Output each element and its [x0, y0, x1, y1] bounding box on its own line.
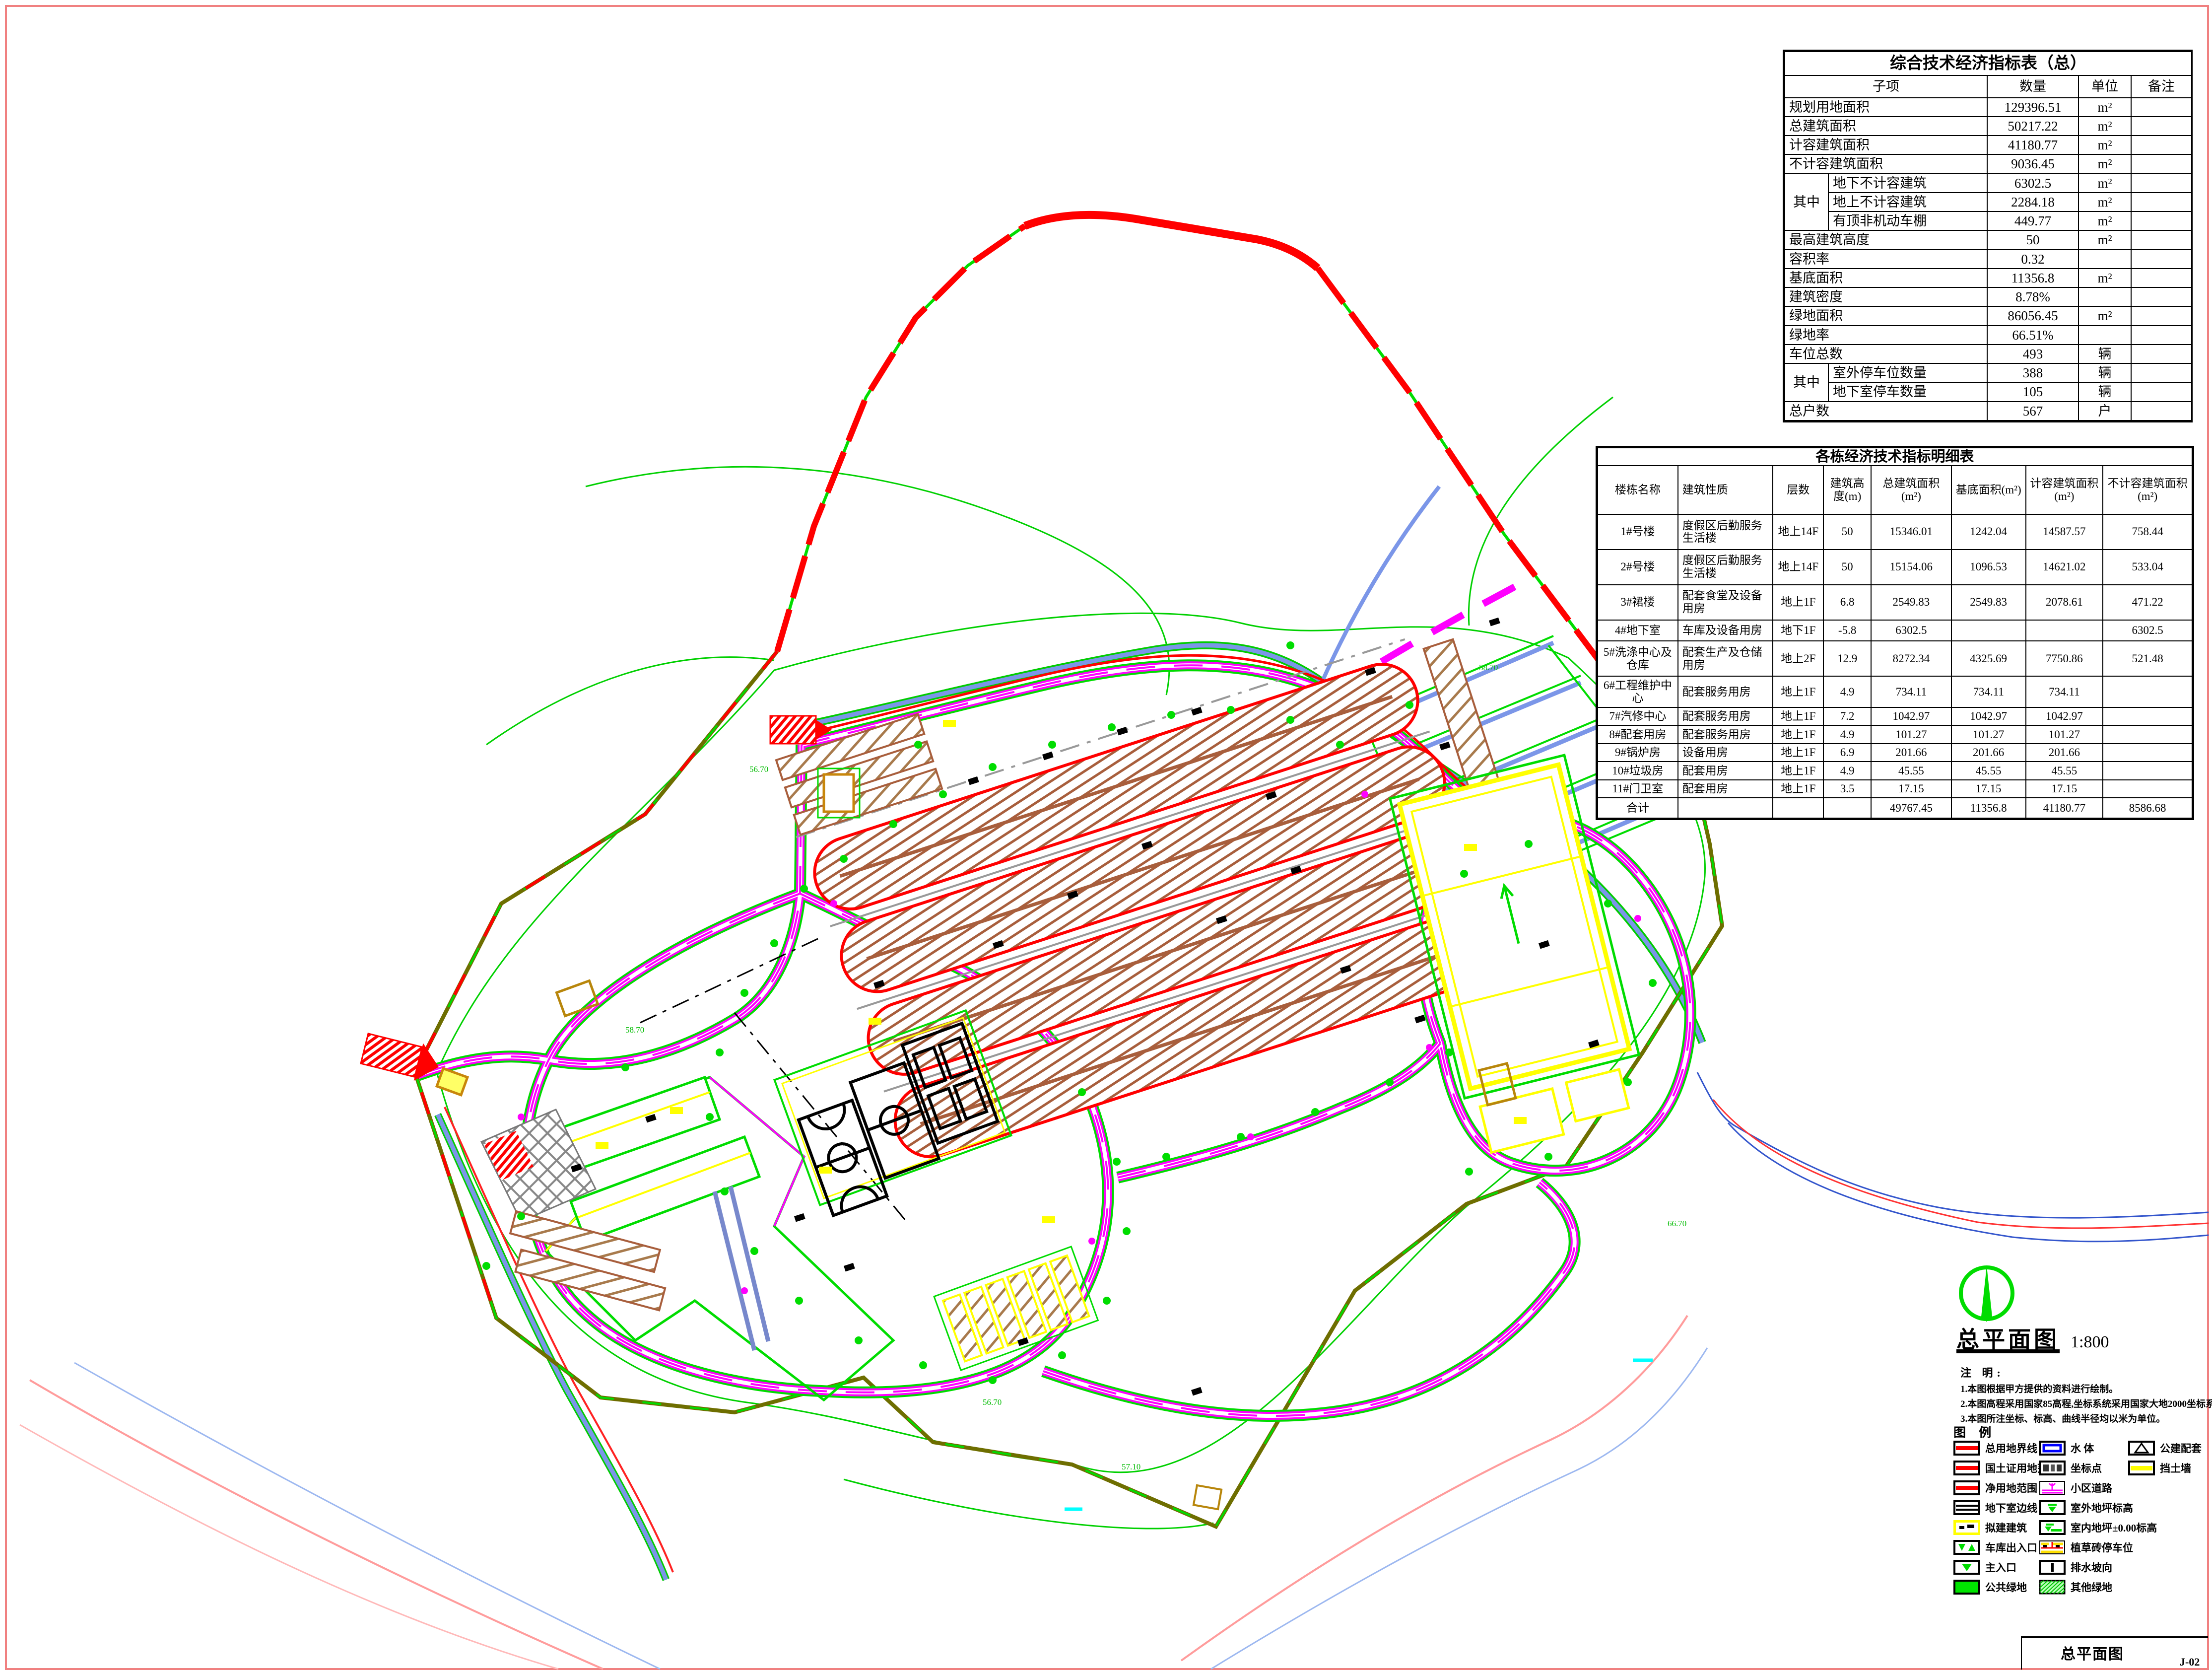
table-cell: 地上14F [1773, 550, 1823, 585]
table-cell: m² [2078, 174, 2131, 193]
legend-item: 水 体 [2039, 1440, 2094, 1457]
elevation-label: 56.70 [983, 1397, 1002, 1407]
table-cell: m² [2078, 306, 2131, 325]
legend-label: 总用地界线 [1985, 1441, 2037, 1456]
table-cell: 7.2 [1823, 707, 1871, 725]
table-cell: 建筑密度 [1785, 287, 1987, 306]
table-cell [2131, 382, 2192, 401]
note-line: 2.本图高程采用国家85高程,坐标系统采用国家大地2000坐标系统。 [1960, 1396, 2199, 1410]
coord-point-icon [2039, 1461, 2066, 1475]
table-cell [2131, 326, 2192, 345]
table-cell: m² [2078, 230, 2131, 249]
table-cell: 2549.83 [1951, 585, 2026, 620]
notes-lines: 1.本图根据甲方提供的资料进行绘制。2.本图高程采用国家85高程,坐标系统采用国… [1960, 1382, 2199, 1425]
table-cell: 50217.22 [1987, 117, 2078, 136]
green-solid-icon [1953, 1580, 1980, 1595]
table-cell: 合计 [1598, 798, 1678, 818]
table-cell: 辆 [2078, 363, 2131, 382]
legend-item: 小区道路 [2039, 1479, 2112, 1496]
table-cell [2103, 707, 2192, 725]
table-cell [2078, 287, 2131, 306]
table-cell: 地上2F [1773, 641, 1823, 676]
table-cell: 地上1F [1773, 585, 1823, 620]
table-cell: 734.11 [1871, 676, 1951, 707]
table-cell: 辆 [2078, 382, 2131, 401]
table-cell: 地上14F [1773, 514, 1823, 550]
table-cell: 配套用房 [1678, 780, 1773, 798]
table-cell: 10#垃圾房 [1598, 762, 1678, 779]
table-cell: 配套服务用房 [1678, 707, 1773, 725]
table-cell: 1242.04 [1951, 514, 2026, 550]
main-entrance-icon [1953, 1560, 1980, 1575]
table-cell: 度假区后勤服务生活楼 [1678, 514, 1773, 550]
red-line-icon [1953, 1441, 1980, 1456]
legend-label: 其他绿地 [2071, 1580, 2112, 1595]
table-cell: 楼栋名称 [1598, 466, 1678, 514]
table-cell: 绿地率 [1785, 326, 1987, 345]
table-cell: 201.66 [2026, 744, 2103, 762]
table-cell: 4#地下室 [1598, 620, 1678, 641]
table-cell: m² [2078, 136, 2131, 154]
table-cell: 9036.45 [1987, 154, 2078, 173]
table-cell: 配套服务用房 [1678, 676, 1773, 707]
table-cell: 单位 [2078, 75, 2131, 97]
table-cell: 50 [1823, 514, 1871, 550]
legend-label: 主入口 [1985, 1560, 2016, 1575]
map-title-underline [1956, 1349, 2060, 1353]
table-cell: 2#号楼 [1598, 550, 1678, 585]
table-cell: 地上1F [1773, 744, 1823, 762]
garage-entrance-icon [1953, 1540, 1980, 1555]
table-cell: 7750.86 [2026, 641, 2103, 676]
table-cell [1823, 798, 1871, 818]
legend-label: 地下室边线 [1985, 1500, 2037, 1515]
table-cell: 计容建筑面积 [1785, 136, 1987, 154]
table-cell: 地上1F [1773, 762, 1823, 779]
table-cell: 17.15 [2026, 780, 2103, 798]
table-cell [2103, 676, 2192, 707]
table-cell: 地上1F [1773, 676, 1823, 707]
drain-icon [2039, 1560, 2066, 1575]
table-cell: 14587.57 [2026, 514, 2103, 550]
table-cell: 45.55 [1871, 762, 1951, 779]
table-cell: 449.77 [1987, 211, 2078, 230]
table-cell [2026, 620, 2103, 641]
table-cell: 129396.51 [1987, 98, 2078, 117]
table-cell [2131, 230, 2192, 249]
red-line-icon [1953, 1480, 1980, 1495]
legend-label: 小区道路 [2071, 1480, 2112, 1495]
table-cell: 8.78% [1987, 287, 2078, 306]
legend-item: 植草砖停车位 [2039, 1539, 2133, 1556]
legend-label: 植草砖停车位 [2071, 1540, 2133, 1555]
table-cell: 建筑高度(m) [1823, 466, 1871, 514]
table-cell: 子项 [1785, 75, 1987, 97]
grass-parking-icon [2039, 1540, 2066, 1555]
table-cell: 8272.34 [1871, 641, 1951, 676]
table-title: 综合技术经济指标表（总） [1785, 52, 2192, 75]
table-cell: 471.22 [2103, 585, 2192, 620]
table-cell: 配套生产及仓储用房 [1678, 641, 1773, 676]
table-cell: 41180.77 [1987, 136, 2078, 154]
yellow-building-icon [1953, 1520, 1980, 1535]
table-cell [2103, 744, 2192, 762]
table-cell [1951, 620, 2026, 641]
table-cell: 66.51% [1987, 326, 2078, 345]
table-cell: 5#洗涤中心及仓库 [1598, 641, 1678, 676]
table-cell: m² [2078, 98, 2131, 117]
legend-item: 公建配套 [2128, 1440, 2202, 1457]
table-cell [2131, 117, 2192, 136]
notes-block: 注 明: 1.本图根据甲方提供的资料进行绘制。2.本图高程采用国家85高程,坐标… [1960, 1364, 2199, 1425]
legend-item: 公共绿地 [1953, 1579, 2027, 1596]
other-green-icon [2039, 1580, 2066, 1595]
table-cell: 辆 [2078, 345, 2131, 363]
table-cell: 最高建筑高度 [1785, 230, 1987, 249]
table-cell: 86056.45 [1987, 306, 2078, 325]
table-cell: 地上1F [1773, 707, 1823, 725]
table-cell: 6302.5 [1987, 174, 2078, 193]
table-cell: 6302.5 [2103, 620, 2192, 641]
table-cell: 105 [1987, 382, 2078, 401]
table-cell: 14621.02 [2026, 550, 2103, 585]
map-title-block: 总平面图 1:800 [1956, 1322, 2165, 1356]
drawing-sheet: 56.7058.7057.1066.7056.7058.70 综合技术经济指标表… [0, 0, 2212, 1673]
table-cell [2131, 154, 2192, 173]
black-line-icon [1953, 1500, 1980, 1515]
table-cell: 车位总数 [1785, 345, 1987, 363]
legend-item: 室外地坪标高 [2039, 1499, 2133, 1516]
red-line-icon [1953, 1461, 1980, 1475]
table-cell: m² [2078, 193, 2131, 211]
table-cell: 层数 [1773, 466, 1823, 514]
titleblock-drawing-number: J-02 [2180, 1656, 2200, 1669]
table-cell: 3#裙楼 [1598, 585, 1678, 620]
table-cell: 101.27 [1871, 725, 1951, 743]
table-cell: 521.48 [2103, 641, 2192, 676]
table-cell: 45.55 [1951, 762, 2026, 779]
table-cell: 45.55 [2026, 762, 2103, 779]
table-cell [2078, 326, 2131, 345]
table-cell [1773, 798, 1823, 818]
table-cell [2131, 269, 2192, 287]
table-cell: 其中 [1785, 174, 1828, 231]
table-cell: 基底面积(m²) [1951, 466, 2026, 514]
table-cell: 6.9 [1823, 744, 1871, 762]
table-cell: 758.44 [2103, 514, 2192, 550]
legend-label: 坐标点 [2071, 1461, 2102, 1475]
table-cell: 101.27 [2026, 725, 2103, 743]
table-cell [2131, 306, 2192, 325]
table-cell: 12.9 [1823, 641, 1871, 676]
legend-item: 室内地坪±0.00标高 [2039, 1519, 2157, 1536]
legend-item: 车库出入口 [1953, 1539, 2037, 1556]
legend-label: 挡土墙 [2160, 1461, 2191, 1475]
table-cell [2131, 136, 2192, 154]
table-cell: 2549.83 [1871, 585, 1951, 620]
table-cell: 15154.06 [1871, 550, 1951, 585]
table-cell: 有顶非机动车棚 [1828, 211, 1987, 230]
table-cell: 0.32 [1987, 250, 2078, 269]
elev-indoor-icon [2039, 1520, 2066, 1535]
table-cell [2131, 402, 2192, 420]
legend-label: 排水坡向 [2071, 1560, 2112, 1575]
table-cell [2131, 174, 2192, 193]
table-cell: 6.8 [1823, 585, 1871, 620]
table-cell: 388 [1987, 363, 2078, 382]
notes-heading: 注 明: [1960, 1364, 2199, 1380]
table-cell: 室外停车位数量 [1828, 363, 1987, 382]
table-cell: 地上1F [1773, 780, 1823, 798]
table-cell: 11#门卫室 [1598, 780, 1678, 798]
legend-label: 室内地坪±0.00标高 [2071, 1520, 2157, 1535]
legend: 图 例 总用地界线国土证用地范围净用地范围地下室边线拟建建筑车库出入口主入口公共… [1953, 1423, 2209, 1594]
table-cell: 备注 [2131, 75, 2192, 97]
table-cell: 7#汽修中心 [1598, 707, 1678, 725]
table-cell [2131, 98, 2192, 117]
table-cell [2131, 345, 2192, 363]
table-cell: 不计容建筑面积(m²) [2103, 466, 2192, 514]
legend-item: 总用地界线 [1953, 1440, 2037, 1457]
table-cell [2131, 250, 2192, 269]
table-cell: 配套用房 [1678, 762, 1773, 779]
table-cell: 总建筑面积(m²) [1871, 466, 1951, 514]
table-cell [2103, 762, 2192, 779]
table-cell: 设备用房 [1678, 744, 1773, 762]
table-cell [1678, 798, 1773, 818]
legend-label: 公共绿地 [1985, 1580, 2027, 1595]
table-cell: 9#锅炉房 [1598, 744, 1678, 762]
sheet-titleblock: 总平面图 J-02 [2021, 1636, 2208, 1670]
table-cell [2131, 363, 2192, 382]
table-cell: 3.5 [1823, 780, 1871, 798]
table-cell: 6#工程维护中心 [1598, 676, 1678, 707]
retaining-wall-icon [2128, 1461, 2155, 1475]
legend-label: 拟建建筑 [1985, 1520, 2027, 1535]
table-cell: 101.27 [1951, 725, 2026, 743]
table-cell: 201.66 [1871, 744, 1951, 762]
table-cell: m² [2078, 154, 2131, 173]
legend-label: 净用地范围 [1985, 1480, 2037, 1495]
table-cell [2131, 193, 2192, 211]
table-cell [2131, 287, 2192, 306]
table-cell: 其中 [1785, 363, 1828, 402]
table-cell: 基底面积 [1785, 269, 1987, 287]
table-cell: 17.15 [1871, 780, 1951, 798]
table-cell: m² [2078, 269, 2131, 287]
table-cell: 49767.45 [1871, 798, 1951, 818]
legend-item: 坐标点 [2039, 1460, 2102, 1476]
legend-label: 室外地坪标高 [2071, 1500, 2133, 1515]
elev-outdoor-icon [2039, 1500, 2066, 1515]
legend-label: 公建配套 [2160, 1441, 2202, 1456]
road-icon [2039, 1480, 2066, 1495]
table-cell: 1096.53 [1951, 550, 2026, 585]
table-cell: 计容建筑面积(m²) [2026, 466, 2103, 514]
table-cell [2103, 780, 2192, 798]
legend-label: 水 体 [2071, 1441, 2094, 1456]
table-cell: 533.04 [2103, 550, 2192, 585]
elevation-label: 57.10 [1122, 1462, 1140, 1471]
table-cell [2131, 211, 2192, 230]
table-cell: 734.11 [2026, 676, 2103, 707]
legend-item: 排水坡向 [2039, 1559, 2112, 1576]
note-line: 1.本图根据甲方提供的资料进行绘制。 [1960, 1382, 2199, 1395]
table-cell: 201.66 [1951, 744, 2026, 762]
table-cell: 配套服务用房 [1678, 725, 1773, 743]
table-cell: -5.8 [1823, 620, 1871, 641]
water-icon [2039, 1441, 2066, 1456]
table-cell: 地下不计容建筑 [1828, 174, 1987, 193]
table-cell: 容积率 [1785, 250, 1987, 269]
table-cell: 1042.97 [2026, 707, 2103, 725]
table-cell: 4.9 [1823, 762, 1871, 779]
legend-title: 图 例 [1953, 1423, 2209, 1441]
slope-icon [2128, 1441, 2155, 1456]
table-cell: 4.9 [1823, 725, 1871, 743]
detail-table: 各栋经济技术指标明细表楼栋名称建筑性质层数建筑高度(m)总建筑面积(m²)基底面… [1596, 446, 2194, 820]
table-cell: 数量 [1987, 75, 2078, 97]
table-cell: 总建筑面积 [1785, 117, 1987, 136]
table-cell: 建筑性质 [1678, 466, 1773, 514]
table-cell: 8586.68 [2103, 798, 2192, 818]
table-cell: 总户数 [1785, 402, 1987, 420]
table-cell: 配套食堂及设备用房 [1678, 585, 1773, 620]
table-cell: 2284.18 [1987, 193, 2078, 211]
table-cell: 不计容建筑面积 [1785, 154, 1987, 173]
table-cell: 734.11 [1951, 676, 2026, 707]
table-cell: 50 [1987, 230, 2078, 249]
legend-item: 其他绿地 [2039, 1579, 2112, 1596]
legend-label: 车库出入口 [1985, 1540, 2037, 1555]
elevation-label: 66.70 [1668, 1219, 1686, 1228]
table-cell: 规划用地面积 [1785, 98, 1987, 117]
table-cell: 地下1F [1773, 620, 1823, 641]
legend-item: 净用地范围 [1953, 1479, 2037, 1496]
table-cell [2078, 250, 2131, 269]
table-cell: 6302.5 [1871, 620, 1951, 641]
table-cell: 地上不计容建筑 [1828, 193, 1987, 211]
table-cell: m² [2078, 211, 2131, 230]
elevation-label: 56.70 [749, 765, 768, 774]
table-cell: 8#配套用房 [1598, 725, 1678, 743]
table-title: 各栋经济技术指标明细表 [1598, 448, 2192, 466]
map-scale: 1:800 [2071, 1333, 2109, 1352]
table-cell: 4.9 [1823, 676, 1871, 707]
legend-item: 地下室边线 [1953, 1499, 2037, 1516]
table-cell: 15346.01 [1871, 514, 1951, 550]
table-cell: m² [2078, 117, 2131, 136]
table-cell: 地上1F [1773, 725, 1823, 743]
table-cell: 2078.61 [2026, 585, 2103, 620]
table-cell: 1042.97 [1951, 707, 2026, 725]
legend-item: 主入口 [1953, 1559, 2016, 1576]
elevation-label: 58.70 [1479, 663, 1498, 672]
summary-table: 综合技术经济指标表（总）子项数量单位备注规划用地面积129396.51m²总建筑… [1783, 50, 2193, 422]
table-cell: 地下室停车数量 [1828, 382, 1987, 401]
titleblock-drawing-name: 总平面图 [2061, 1642, 2124, 1664]
table-cell: 绿地面积 [1785, 306, 1987, 325]
north-arrow [1961, 1266, 2012, 1322]
table-cell: 1#号楼 [1598, 514, 1678, 550]
table-cell: 度假区后勤服务生活楼 [1678, 550, 1773, 585]
table-cell: 11356.8 [1951, 798, 2026, 818]
table-cell: 4325.69 [1951, 641, 2026, 676]
table-cell: 493 [1987, 345, 2078, 363]
table-cell: 567 [1987, 402, 2078, 420]
legend-item: 挡土墙 [2128, 1460, 2191, 1476]
table-cell: 车库及设备用房 [1678, 620, 1773, 641]
table-cell: 11356.8 [1987, 269, 2078, 287]
small-parking-rows [934, 1247, 1098, 1370]
legend-item: 拟建建筑 [1953, 1519, 2027, 1536]
table-cell: 17.15 [1951, 780, 2026, 798]
table-cell: 41180.77 [2026, 798, 2103, 818]
elevation-label: 58.70 [625, 1025, 644, 1035]
table-cell: 50 [1823, 550, 1871, 585]
table-cell: 户 [2078, 402, 2131, 420]
table-cell: 1042.97 [1871, 707, 1951, 725]
table-cell [2103, 725, 2192, 743]
